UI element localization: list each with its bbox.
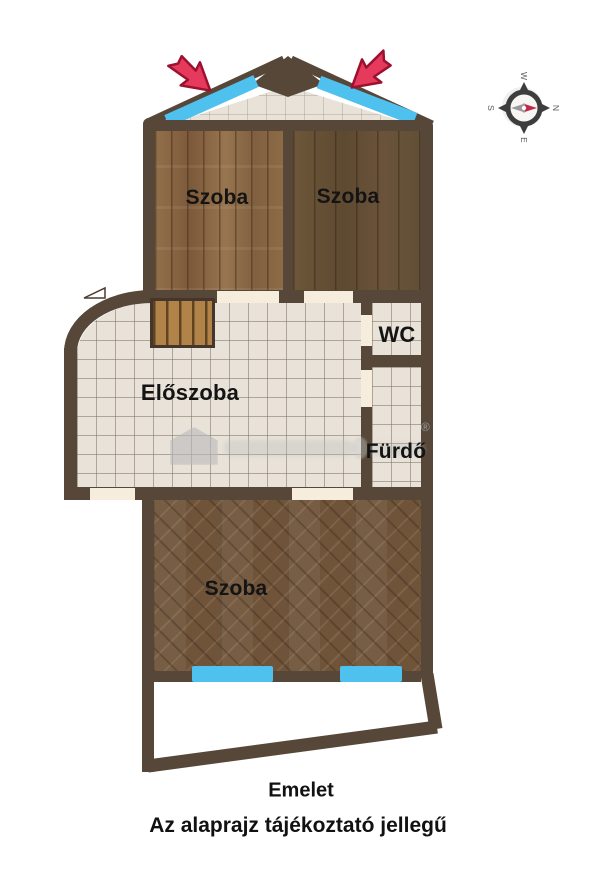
staircase (150, 298, 215, 348)
room-label-furdo: Fürdő (366, 440, 426, 464)
door-opening-furdo (361, 370, 372, 407)
room-floor-szoba-bottom (153, 500, 421, 671)
caption-disclaimer: Az alaprajz tájékoztató jellegű (149, 814, 447, 838)
compass-label-n: N (551, 105, 561, 111)
door-opening-wc (361, 315, 372, 346)
room-floor-furdo (372, 367, 421, 487)
watermark-text-blur (224, 440, 354, 456)
door-opening-szoba-right (304, 291, 353, 303)
wall-wc-furdo-divider (361, 355, 433, 367)
floor-plan: N E S W ® Szoba Szoba WC Előszoba Fürdő … (0, 0, 600, 888)
wall-left-hall (64, 348, 77, 500)
door-opening-szoba-bottom (292, 488, 353, 500)
terrace-walls (125, 660, 450, 785)
room-label-eloszoba: Előszoba (141, 380, 239, 406)
door-opening-szoba-left (217, 291, 279, 303)
caption-floor-name: Emelet (268, 780, 334, 803)
room-label-szoba-top-right: Szoba (317, 185, 380, 209)
room-label-wc: WC (378, 322, 415, 348)
compass-icon: N E S W (486, 70, 562, 146)
wall-room-divider (283, 122, 293, 302)
terrace-wall-bottom (148, 727, 437, 766)
room-label-szoba-top-left: Szoba (186, 186, 249, 210)
room-floor-szoba-top-right (293, 128, 421, 291)
wall-right (421, 120, 433, 675)
compass-label-w: W (519, 72, 529, 80)
wall-wedge-detail (80, 284, 110, 302)
compass-label-s: S (486, 105, 496, 111)
roof-apex (252, 56, 324, 97)
door-opening-hall-left (90, 488, 135, 500)
wall-curved-corner (64, 290, 158, 356)
terrace-wall-right (427, 674, 436, 729)
compass-label-e: E (519, 137, 529, 143)
wall-left-upper (143, 118, 155, 302)
watermark-registered-mark: ® (421, 420, 430, 434)
room-label-szoba-bottom: Szoba (205, 577, 268, 601)
